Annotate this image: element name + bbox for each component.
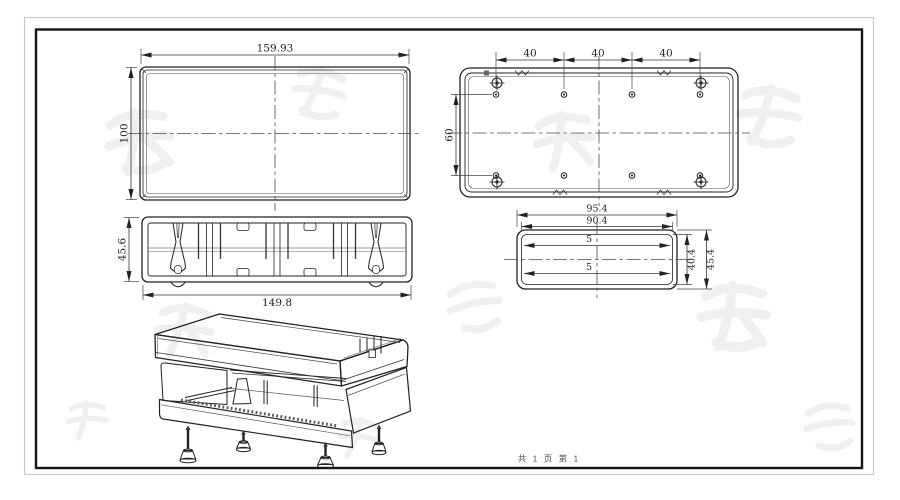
page-footer: 共 1 页 第 1 [518,454,580,464]
corner-boss [490,175,505,190]
base-left-inner-wall [161,363,227,405]
partition-wall [342,223,348,276]
base-ribs [264,380,317,407]
plan-row-spacing-dimension: 60 [444,95,493,176]
corner-boss [694,175,709,190]
partition-wall [274,223,280,276]
slot-bottom-label: 5 [586,262,592,273]
partition-wall [207,223,213,276]
section-width-label: 149.8 [262,297,292,309]
plan-view: 40 40 40 60 [444,48,751,207]
hole-pitch-label-2: 40 [591,48,604,60]
end-inner-height-label: 40.4 [687,249,698,270]
clip [237,269,249,277]
end-inner-width-label: 90.4 [586,216,607,227]
mounting-holes [493,92,703,179]
row-spacing-label: 60 [444,128,456,141]
base-center-boss [233,379,251,405]
corner-boss [490,76,505,91]
section-partitions [207,223,348,276]
end-view: 5 5 95.4 90.4 40.4 45.4 [504,204,717,299]
clip [237,223,249,231]
corner-boss [694,76,709,91]
end-outer-height-label: 45.4 [706,249,717,270]
outer-sheet-border [25,18,874,475]
clip [304,269,316,277]
section-height-dimension: 45.6 [117,218,140,282]
plan-latch-notches [484,71,671,195]
clip [304,223,316,231]
screw-boss-right [369,223,384,287]
screw-boss-left [171,223,186,287]
section-view: 45.6 149.8 [117,217,413,309]
drawing-canvas: 159.93 100 [0,0,900,500]
section-cavity [148,223,406,276]
front-view: 159.93 100 [119,43,422,212]
rubber-foot [237,441,251,452]
rubber-foot [180,449,196,463]
hole-pitch-label-3: 40 [659,48,672,60]
section-height-label: 45.6 [117,237,129,261]
slot-top-label: 5 [586,234,592,245]
rubber-foot [318,456,334,468]
rubber-foot [372,442,386,454]
drawing-sheet: 159.93 100 [0,0,900,500]
section-clips [237,223,316,276]
screw [186,426,191,450]
end-outer-width-label: 95.4 [586,204,607,215]
front-width-label: 159.93 [257,43,294,55]
section-ribs [199,223,356,259]
hole-pitch-label-1: 40 [523,48,536,60]
front-height-label: 100 [119,123,131,143]
